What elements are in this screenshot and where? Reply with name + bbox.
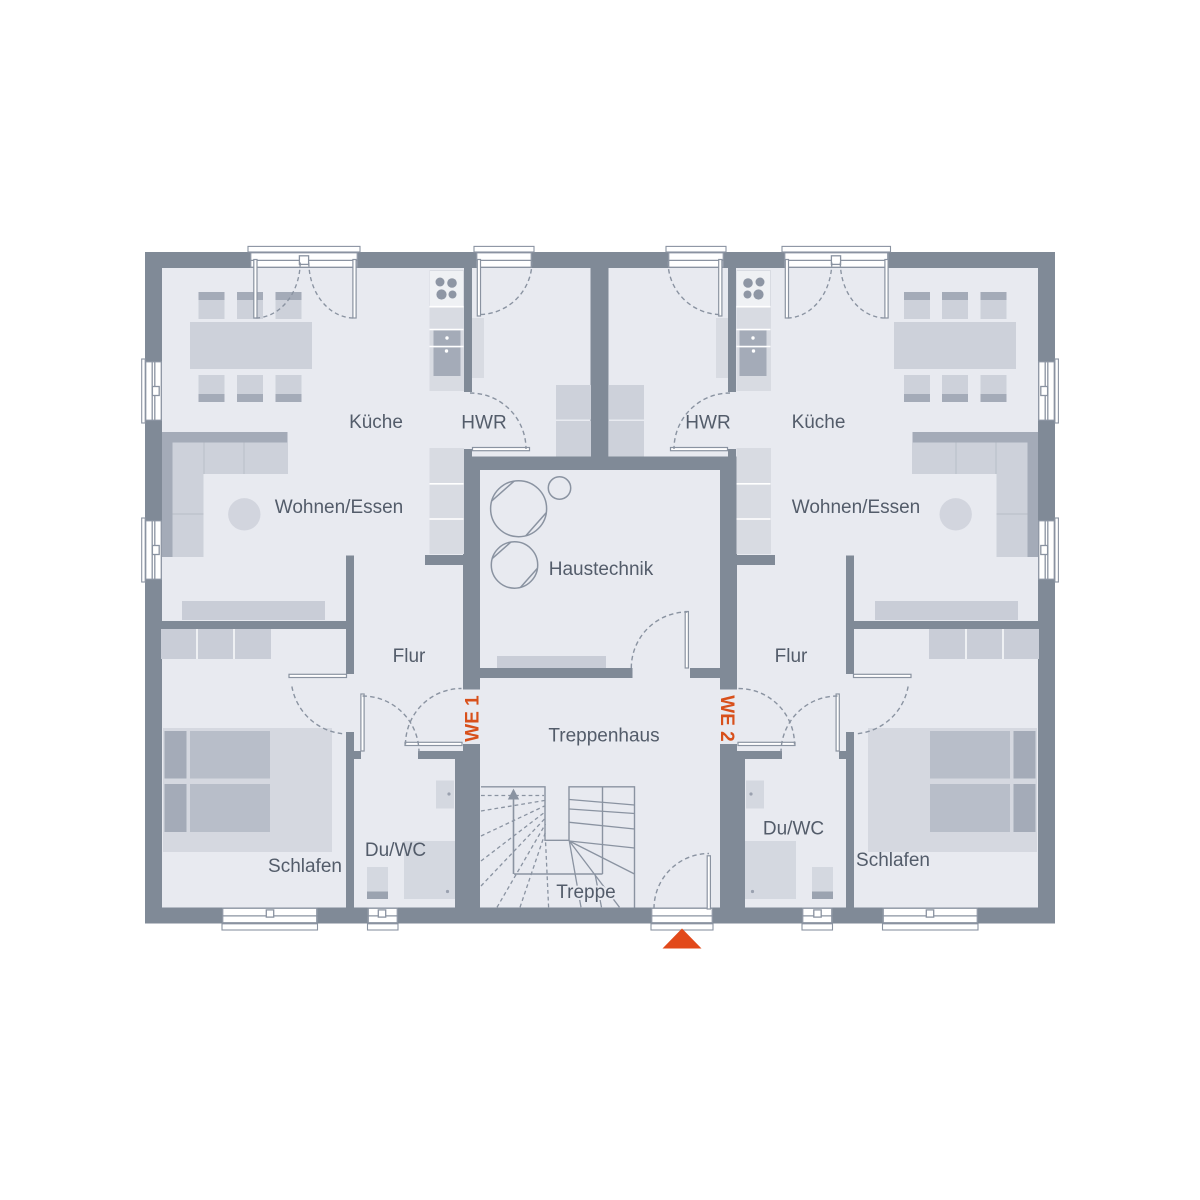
svg-text:Schlafen: Schlafen: [856, 850, 930, 871]
svg-text:WE 2: WE 2: [716, 695, 737, 741]
svg-text:Schlafen: Schlafen: [268, 856, 342, 877]
svg-text:Wohnen/Essen: Wohnen/Essen: [275, 497, 404, 518]
svg-text:Du/WC: Du/WC: [763, 819, 824, 840]
svg-text:Wohnen/Essen: Wohnen/Essen: [792, 497, 921, 518]
svg-text:Flur: Flur: [775, 646, 808, 667]
svg-text:Treppe: Treppe: [556, 882, 616, 903]
svg-text:HWR: HWR: [461, 413, 506, 434]
svg-text:Küche: Küche: [349, 412, 403, 433]
svg-text:WE 1: WE 1: [463, 695, 484, 742]
svg-text:Treppenhaus: Treppenhaus: [548, 726, 659, 747]
svg-text:HWR: HWR: [685, 413, 730, 434]
svg-text:Flur: Flur: [393, 646, 426, 667]
svg-text:Küche: Küche: [792, 412, 846, 433]
svg-text:Du/WC: Du/WC: [365, 840, 426, 861]
svg-text:Haustechnik: Haustechnik: [549, 559, 654, 580]
